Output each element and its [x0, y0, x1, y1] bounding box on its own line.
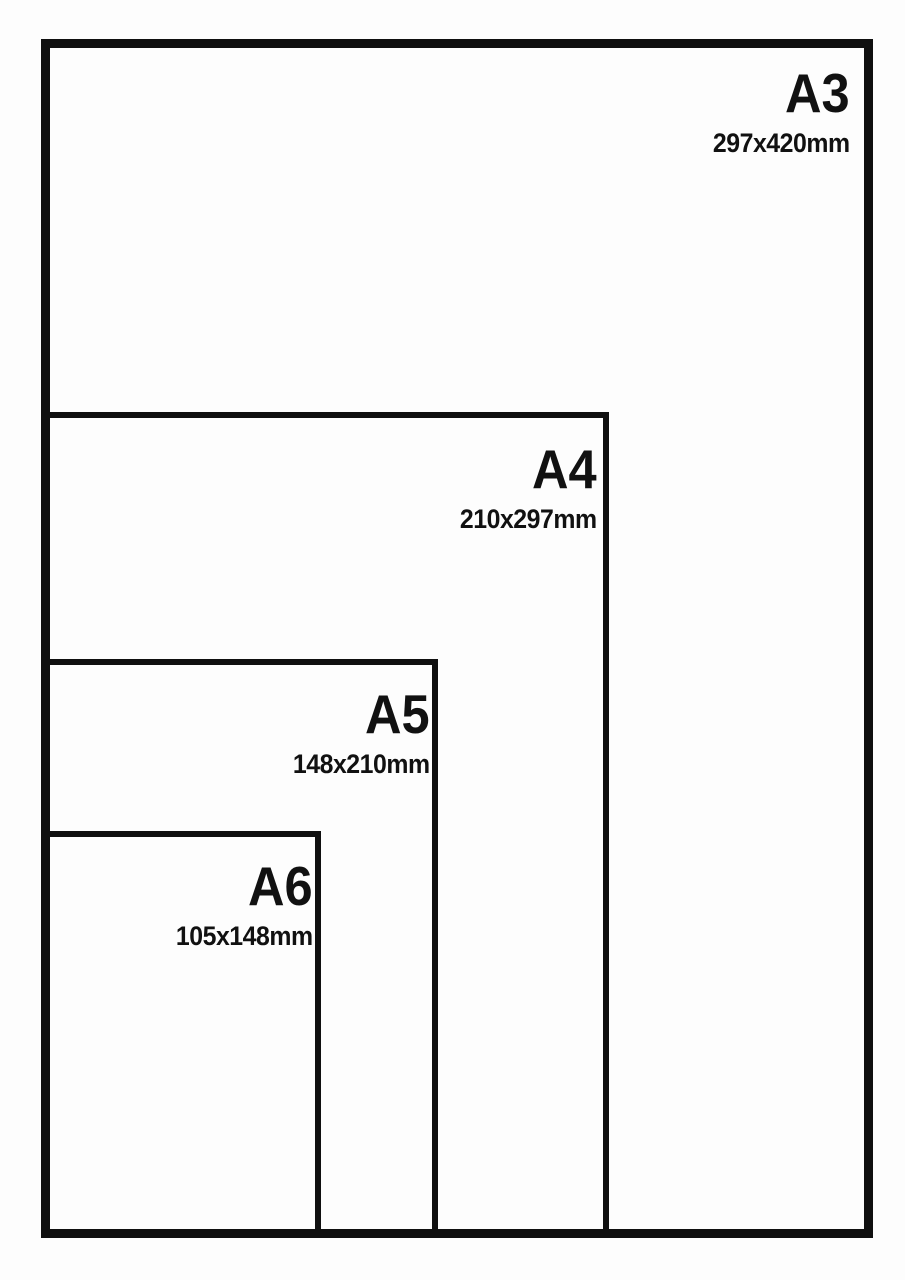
a3-size-dimensions: 297x420mm	[713, 127, 850, 159]
a6-label: A6 105x148mm	[176, 859, 313, 952]
a3-label: A3 297x420mm	[713, 66, 850, 159]
a6-size-dimensions: 105x148mm	[176, 920, 313, 952]
a5-size-name: A5	[293, 687, 430, 742]
a6-size-name: A6	[176, 859, 313, 914]
a4-size-name: A4	[460, 442, 597, 497]
paper-sizes-diagram: A3 297x420mm A4 210x297mm A5 148x210mm A…	[0, 0, 905, 1280]
a3-size-name: A3	[713, 66, 850, 121]
a5-label: A5 148x210mm	[293, 687, 430, 780]
a4-label: A4 210x297mm	[460, 442, 597, 535]
a5-size-dimensions: 148x210mm	[293, 748, 430, 780]
a4-size-dimensions: 210x297mm	[460, 503, 597, 535]
